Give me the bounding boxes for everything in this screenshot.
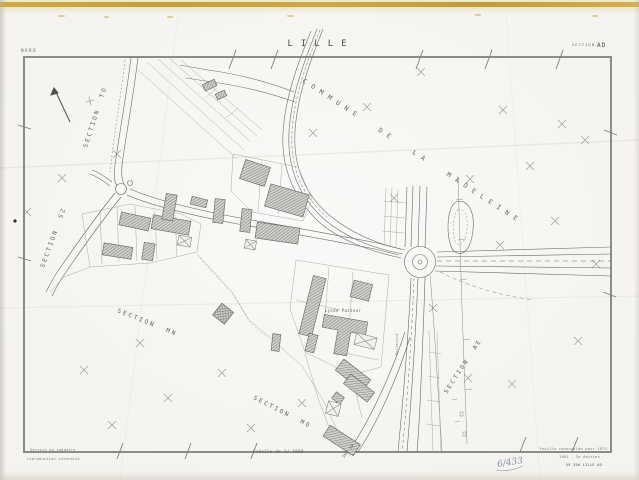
lycee-label: Lycée Pasteur <box>325 308 362 313</box>
scan-right-shadow <box>634 0 639 480</box>
section-ad-value: AD <box>597 42 606 49</box>
edition-line-1: Feuille renouvelée pour 1973 <box>540 447 607 451</box>
scan-gold-fade <box>0 7 639 14</box>
margin-dot <box>13 219 16 222</box>
boulevard-label: Boulevard <box>395 333 399 355</box>
building <box>213 199 225 224</box>
nord-label: NORD <box>21 48 37 53</box>
building <box>240 209 252 233</box>
cadastral-map: LILLE NORD SECTION AD <box>0 0 639 480</box>
sheet-title: LILLE <box>287 39 354 49</box>
scale-label: Echelle de 1/ 1000 <box>253 449 304 454</box>
scan-bottom-shadow <box>0 471 639 480</box>
credit-line-1: Service du cadastre <box>30 448 76 452</box>
sheet-reference: 59 350 LILLE AD <box>566 463 602 467</box>
building <box>271 334 281 352</box>
building <box>142 242 156 261</box>
paper-texture <box>0 0 639 480</box>
credit-line-2: reproduction interdite <box>27 457 80 461</box>
scan-left-shadow <box>0 0 6 480</box>
scanned-cadastral-sheet: LILLE NORD SECTION AD <box>0 0 639 480</box>
edition-line-2: 1981 - 3e édition <box>559 455 600 459</box>
section-ad-prefix: SECTION <box>572 42 595 47</box>
